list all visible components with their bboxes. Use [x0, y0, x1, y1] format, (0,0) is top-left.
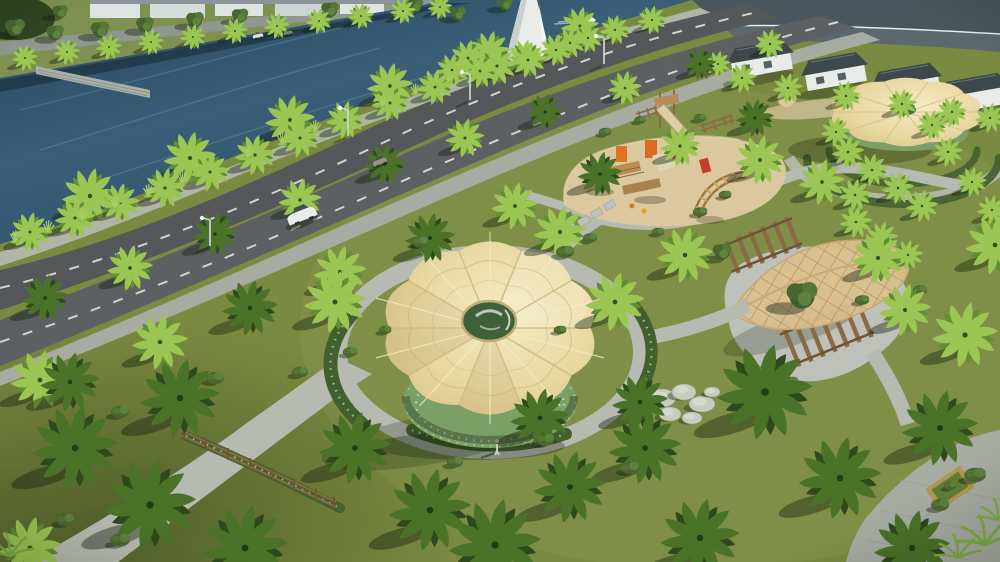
- park-render: [0, 0, 1000, 562]
- aerial-park-scene: [0, 0, 1000, 562]
- vignette: [0, 0, 1000, 562]
